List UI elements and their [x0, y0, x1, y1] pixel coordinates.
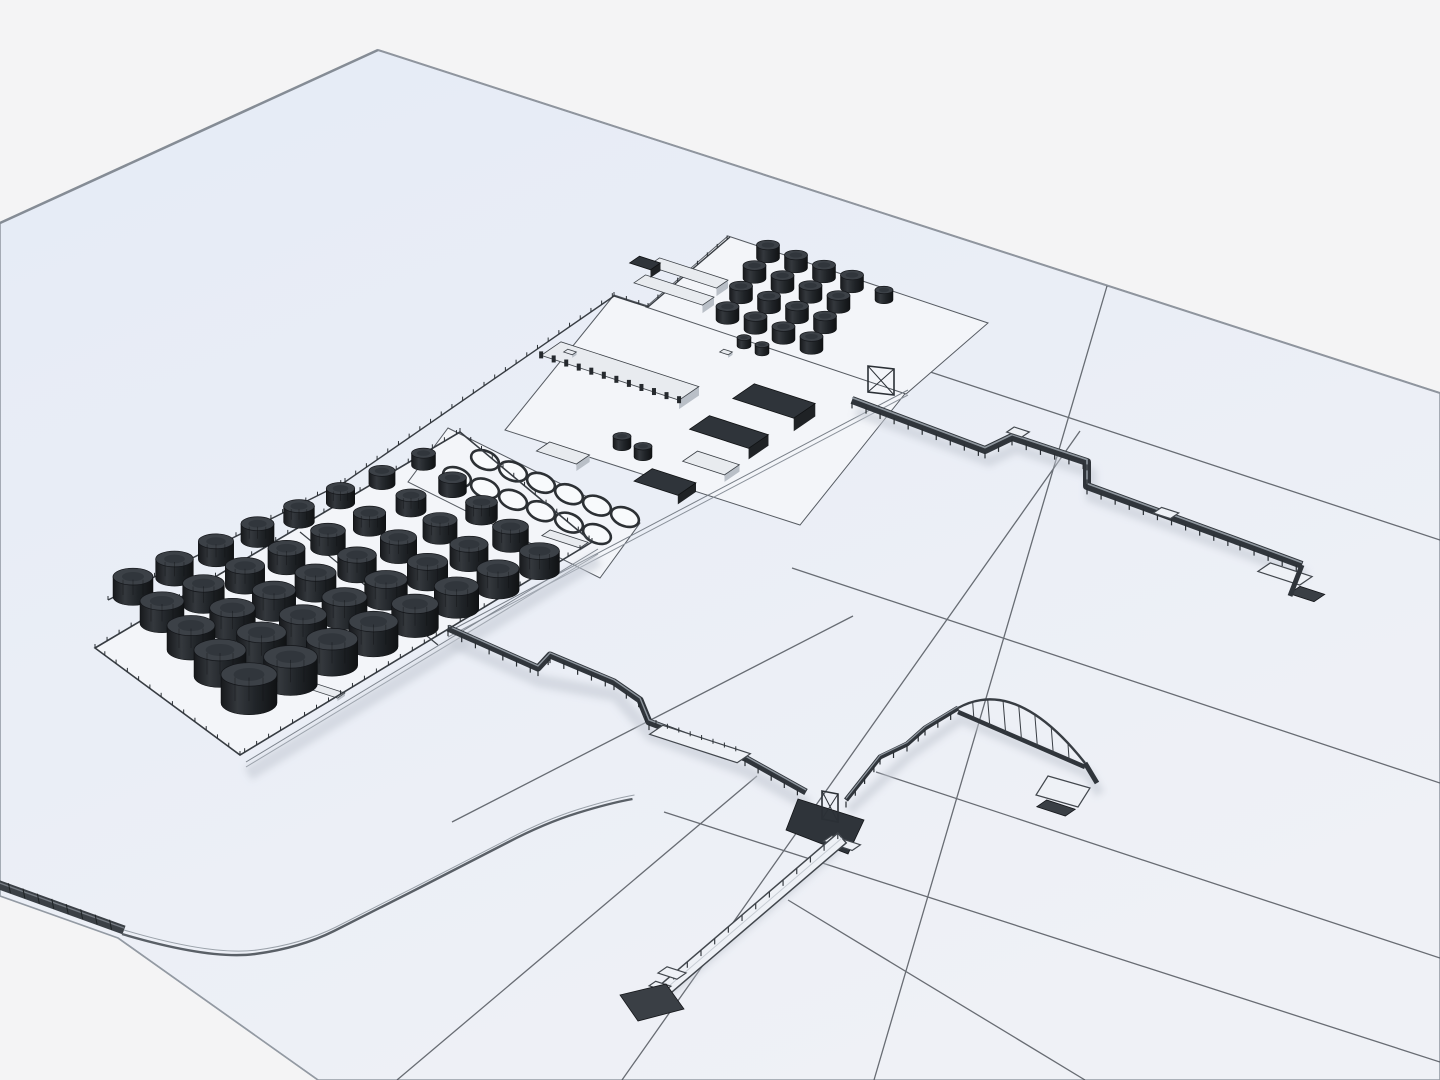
small-storage-tank-cap [791, 303, 804, 308]
storage-tank-cap [388, 533, 408, 541]
roof-rib [665, 392, 669, 399]
storage-tank-cap [318, 527, 337, 535]
small-storage-tank-cap [879, 288, 889, 292]
small-storage-tank-cap [777, 324, 790, 329]
small-tank-cap [638, 444, 648, 448]
roof-rib [552, 355, 556, 362]
small-storage-tank-cap [819, 313, 832, 318]
small-storage-tank-cap [790, 252, 803, 257]
roof-rib [589, 368, 593, 375]
small-storage-tank-cap [721, 304, 734, 309]
roof-rib [577, 364, 581, 371]
storage-tank-cap [361, 509, 379, 517]
storage-tank-cap [206, 537, 225, 545]
roof-rib [627, 380, 631, 387]
roof-rib [677, 396, 681, 403]
roof-rib [614, 376, 618, 383]
small-storage-tank-cap [762, 242, 775, 247]
storage-tank-cap [276, 544, 296, 553]
small-tank-cap [617, 434, 627, 438]
small-storage-tank-cap [818, 262, 831, 267]
small-tank-cap [758, 343, 766, 346]
small-tank-cap [740, 336, 748, 339]
roof-rib [564, 360, 568, 367]
small-storage-tank-cap [804, 283, 817, 288]
storage-tank-cap [445, 474, 460, 480]
roof-rib [652, 388, 656, 395]
small-storage-tank-cap [748, 263, 761, 268]
storage-tank-cap [501, 522, 521, 530]
industrial-terminal-render [0, 0, 1440, 1080]
roof-rib [639, 384, 643, 391]
storage-tank-cap [333, 485, 349, 492]
storage-tank-cap [403, 492, 420, 499]
storage-tank-cap [417, 450, 430, 456]
storage-tank-cap [473, 498, 491, 505]
storage-tank-cap [375, 468, 389, 474]
small-storage-tank-cap [776, 273, 789, 278]
small-storage-tank-cap [749, 314, 762, 319]
storage-tank-cap [291, 503, 308, 510]
small-storage-tank-cap [832, 293, 845, 298]
small-storage-tank-cap [735, 283, 748, 288]
storage-tank-cap [431, 516, 450, 524]
roof-rib [602, 372, 606, 379]
small-storage-tank-cap [805, 334, 818, 339]
small-storage-tank-cap [846, 272, 859, 277]
storage-tank-cap [248, 520, 266, 528]
roof-rib [539, 351, 543, 358]
scene-svg [0, 0, 1440, 1080]
small-storage-tank-cap [763, 293, 776, 298]
